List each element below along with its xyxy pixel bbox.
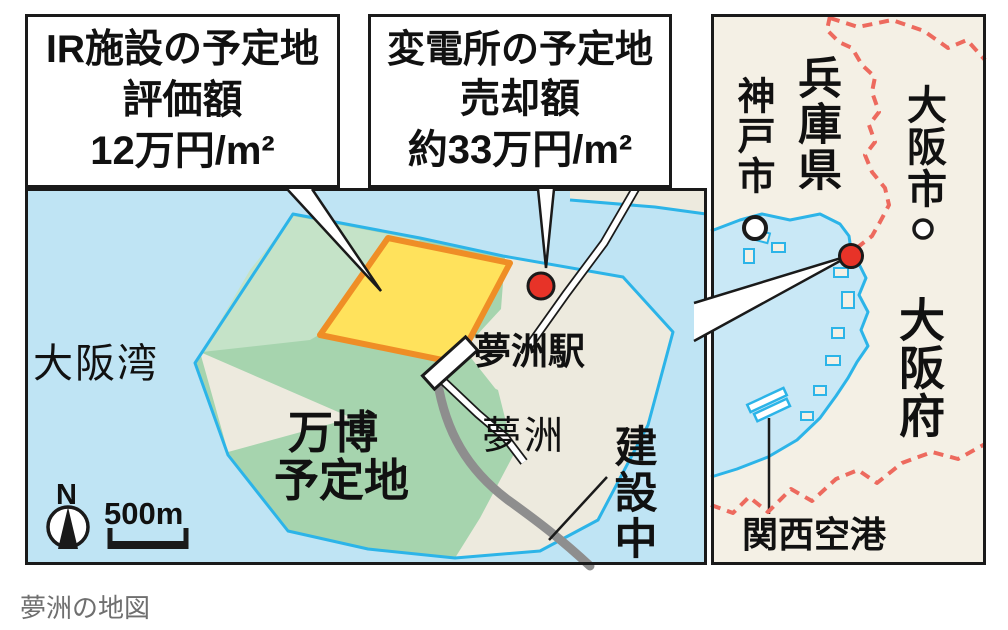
kobe-city-label: 神戸市 bbox=[733, 76, 771, 196]
callout-substation: 変電所の予定地 売却額 約33万円/m² bbox=[368, 14, 672, 188]
yumeshima-location-dot bbox=[840, 245, 863, 268]
osaka-city-marker bbox=[914, 220, 932, 238]
yumeshima-station-label: 夢洲駅 bbox=[474, 333, 585, 370]
substation-site-dot bbox=[528, 273, 554, 299]
substation-callout-value: 約33万円/m² bbox=[408, 125, 633, 176]
figure-caption: 夢洲の地図 bbox=[20, 588, 150, 625]
under-construction-label: 建設中 bbox=[610, 424, 653, 562]
osaka-pref-label: 大阪府 bbox=[896, 296, 942, 440]
osaka-city-label: 大阪市 bbox=[903, 84, 943, 210]
north-compass bbox=[48, 507, 88, 549]
expo-site-label-line1: 万博 bbox=[288, 410, 378, 455]
ir-callout-value-label: 評価額 bbox=[123, 75, 243, 126]
hyogo-pref-label: 兵庫県 bbox=[793, 55, 837, 193]
ir-callout-title: IR施設の予定地 bbox=[46, 25, 319, 75]
compass-north-label: N bbox=[56, 481, 77, 510]
yumeshima-map-figure: IR施設の予定地 評価額 12万円/m² 変電所の予定地 売却額 約33万円/m… bbox=[0, 0, 1008, 630]
substation-callout-value-label: 売却額 bbox=[460, 74, 580, 125]
kansai-airport-label: 関西空港 bbox=[742, 517, 886, 553]
kobe-city-marker bbox=[744, 217, 766, 239]
scale-label: 500m bbox=[104, 498, 183, 529]
ir-callout-value: 12万円/m² bbox=[90, 126, 275, 177]
yumeshima-label: 夢洲 bbox=[482, 417, 566, 456]
callout-ir-site: IR施設の予定地 評価額 12万円/m² bbox=[25, 14, 340, 188]
substation-callout-title: 変電所の予定地 bbox=[387, 26, 653, 75]
expo-site-label-line2: 予定地 bbox=[274, 458, 409, 503]
osaka-bay-label: 大阪湾 bbox=[33, 344, 159, 384]
